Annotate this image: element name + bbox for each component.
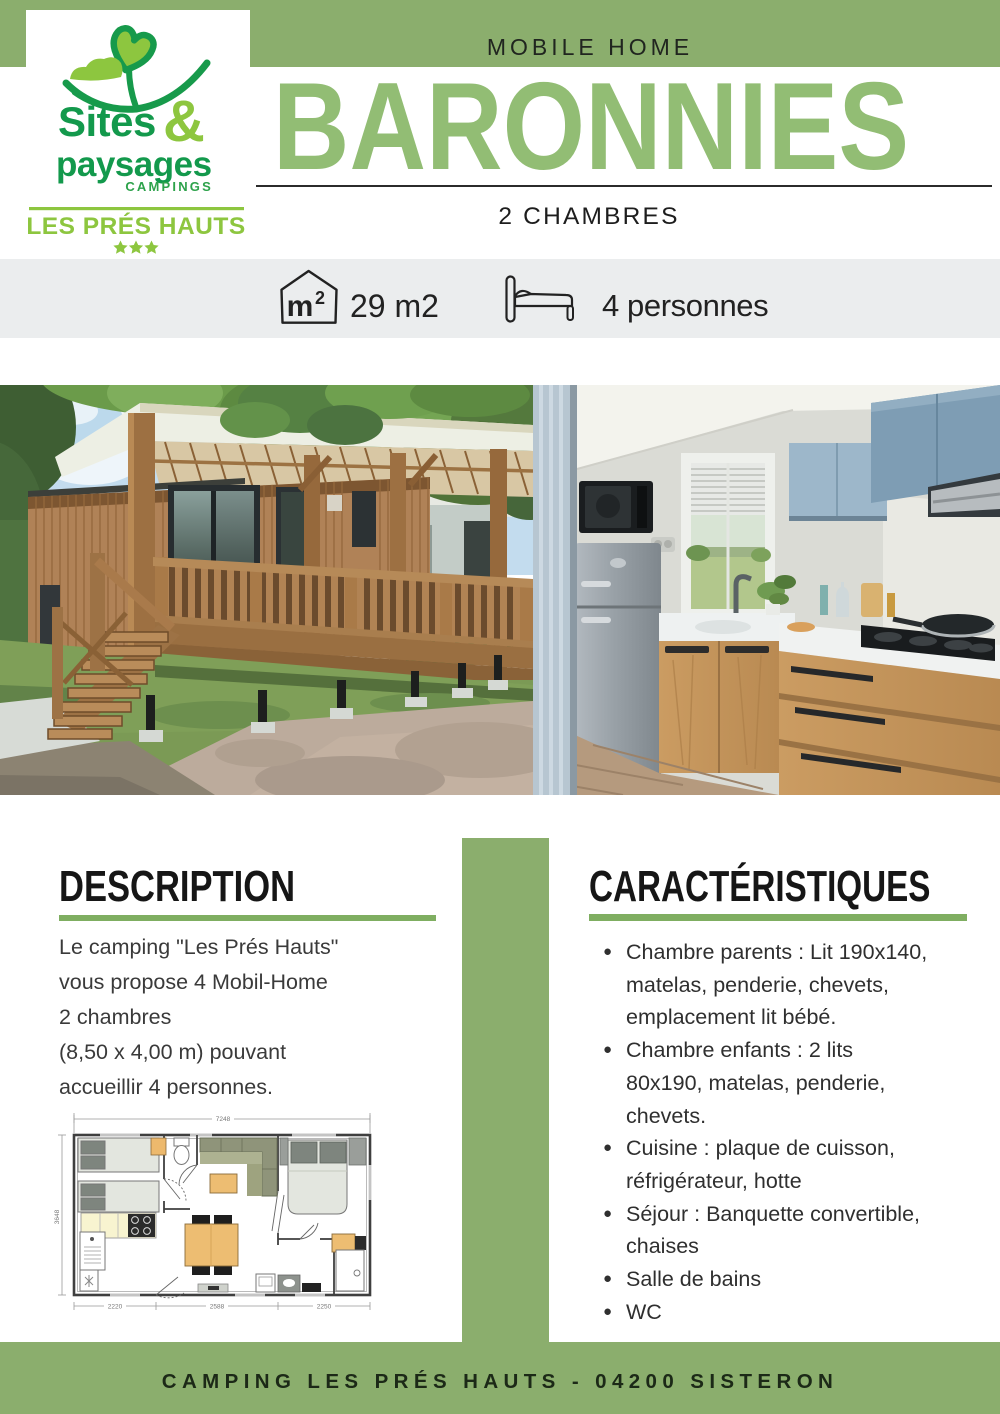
svg-text:2: 2 bbox=[315, 288, 325, 308]
svg-text:3648: 3648 bbox=[54, 1209, 61, 1224]
svg-text:7248: 7248 bbox=[216, 1116, 231, 1123]
svg-text:CAMPINGS: CAMPINGS bbox=[125, 179, 213, 194]
svg-text:LES PRÉS HAUTS: LES PRÉS HAUTS bbox=[26, 212, 245, 240]
svg-text:2588: 2588 bbox=[210, 1304, 225, 1311]
svg-text:m: m bbox=[287, 290, 314, 323]
svg-text:2250: 2250 bbox=[317, 1304, 332, 1311]
svg-text:Sites: Sites bbox=[58, 98, 156, 145]
svg-text:2220: 2220 bbox=[108, 1304, 123, 1311]
